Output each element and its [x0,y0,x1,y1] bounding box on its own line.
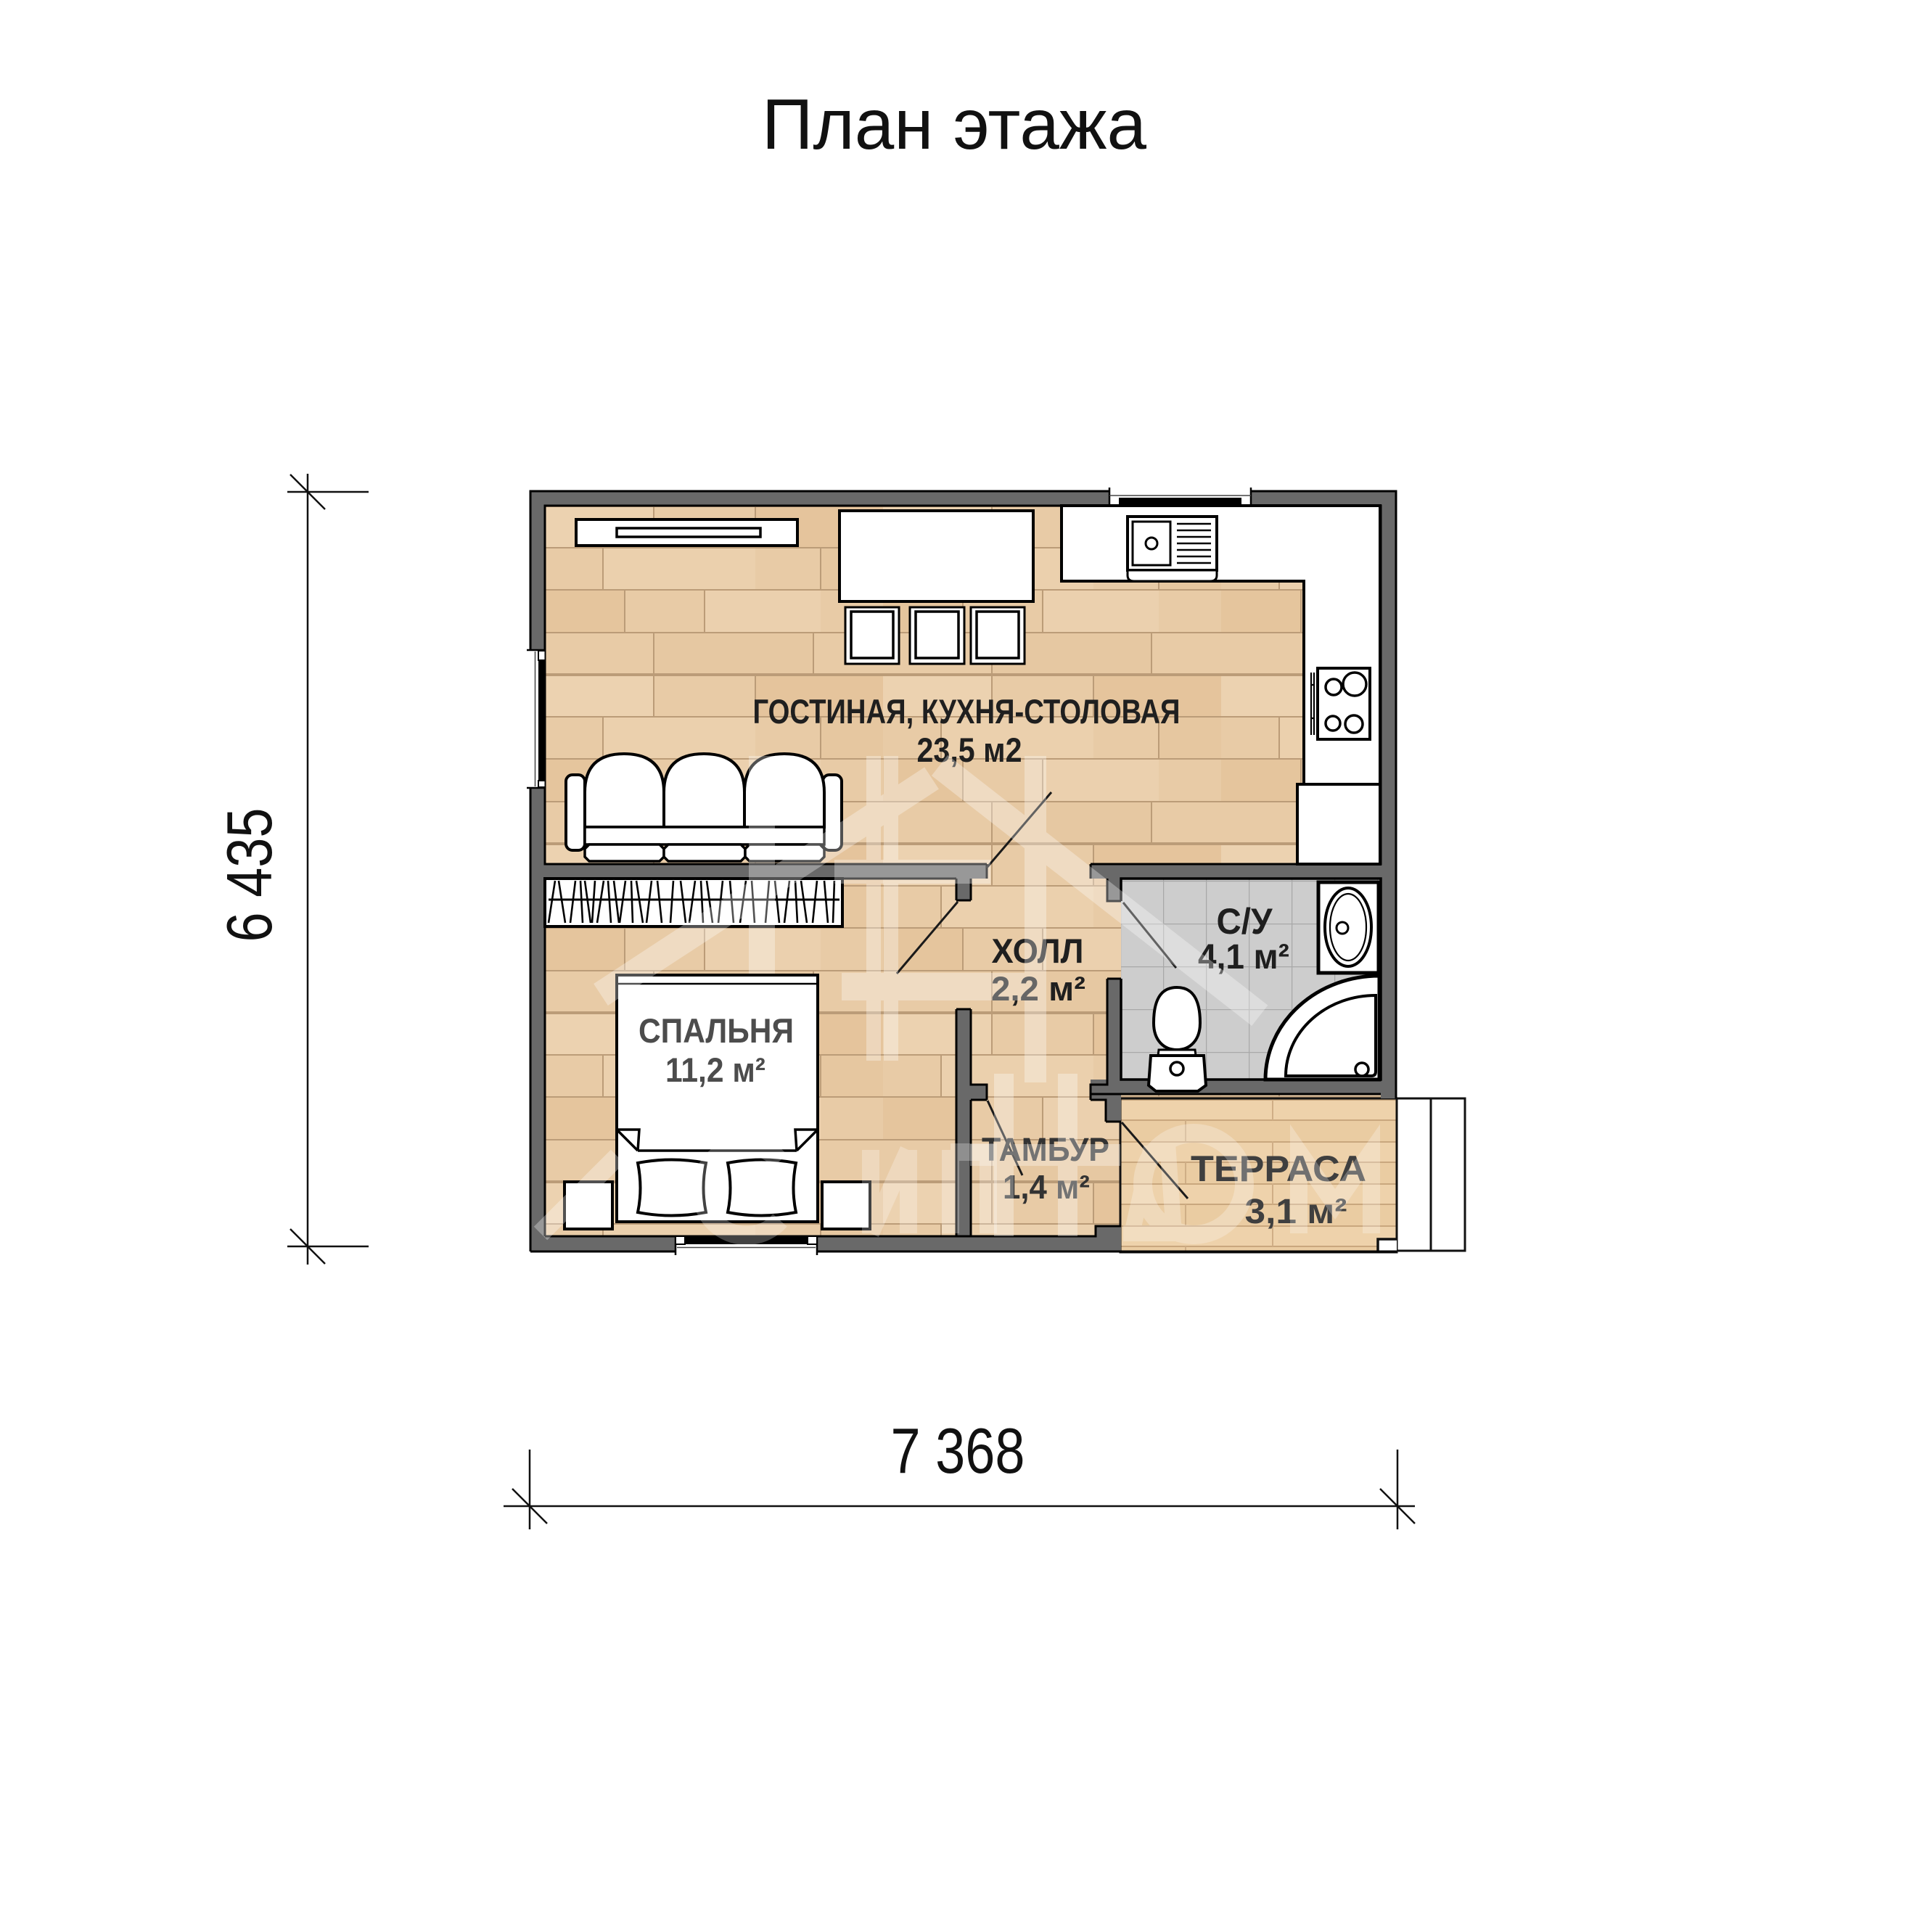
svg-text:23,5 м2: 23,5 м2 [917,731,1022,769]
svg-text:ГОСТИНАЯ, КУХНЯ-СТОЛОВАЯ: ГОСТИНАЯ, КУХНЯ-СТОЛОВАЯ [753,692,1181,731]
svg-text:7 368: 7 368 [891,1415,1025,1487]
svg-text:План этажа: План этажа [762,84,1146,164]
svg-text:11,2 м²: 11,2 м² [665,1051,765,1089]
svg-text:СПАЛЬНЯ: СПАЛЬНЯ [639,1011,794,1050]
svg-text:6 435: 6 435 [213,808,285,942]
svg-text:С/У: С/У [1217,901,1273,942]
